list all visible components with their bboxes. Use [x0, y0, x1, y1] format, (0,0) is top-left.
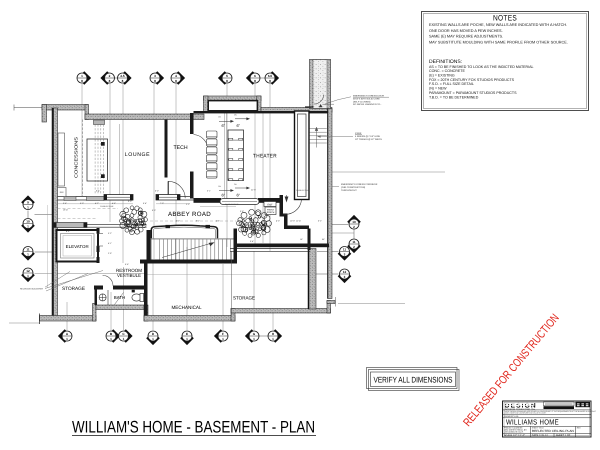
- svg-text:RESTROOM: RESTROOM: [116, 268, 142, 273]
- svg-text:COBBLESTONE: COBBLESTONE: [296, 189, 310, 192]
- svg-text:8: 8: [122, 79, 124, 83]
- svg-text:36" ABOVE LANDING AT FL.: 36" ABOVE LANDING AT FL.: [353, 103, 382, 106]
- svg-text:1: 1: [27, 253, 29, 257]
- svg-text:COBBLESTONE: COBBLESTONE: [225, 203, 239, 206]
- svg-text:COBBLESTONE: COBBLESTONE: [100, 205, 114, 208]
- svg-text:1: 1: [66, 337, 68, 341]
- svg-text:5'-0": 5'-0": [176, 220, 180, 223]
- svg-text:6": 6": [222, 192, 226, 197]
- svg-text:2: 2: [353, 245, 355, 249]
- svg-text:THROUGHOUT: THROUGHOUT: [341, 189, 357, 192]
- svg-text:CONCESSIONS: CONCESSIONS: [74, 137, 79, 178]
- svg-text:3: 3: [344, 253, 346, 257]
- svg-text:8: 8: [154, 79, 156, 83]
- svg-text:12: 12: [26, 269, 30, 273]
- svg-text:4 RISERS @ 7 1/4" HIGH: 4 RISERS @ 7 1/4" HIGH: [355, 135, 381, 138]
- svg-text:3: 3: [344, 275, 346, 279]
- svg-text:SAME (E) MAY REQUIRE ADJUSTMEN: SAME (E) MAY REQUIRE ADJUSTMENTS.: [429, 35, 503, 39]
- svg-text:6'-1": 6'-1": [108, 242, 112, 245]
- svg-text:12'-4": 12'-4": [296, 220, 301, 223]
- svg-text:SHEET 1 OF: SHEET 1 OF: [556, 434, 571, 437]
- svg-text:5'-6": 5'-6": [125, 263, 129, 266]
- svg-text:2: 2: [353, 225, 355, 229]
- svg-text:1: 1: [27, 225, 29, 229]
- svg-text:4: 4: [175, 74, 177, 78]
- svg-text:F: F: [222, 332, 224, 336]
- svg-text:RELOCATE BLEACHER: RELOCATE BLEACHER: [20, 288, 43, 291]
- svg-text:22'-6": 22'-6": [251, 189, 256, 192]
- svg-text:THEATER: THEATER: [253, 154, 277, 160]
- svg-text:1: 1: [186, 337, 188, 341]
- svg-text:VESTIBULE: VESTIBULE: [117, 273, 141, 278]
- svg-text:MAY SUBSTITUTE MOULDING WITH S: MAY SUBSTITUTE MOULDING WITH SAME PROFIL…: [429, 41, 568, 45]
- svg-text:1: 1: [27, 274, 29, 278]
- svg-text:ONE DOOR HAS MOVED A FEW INCHE: ONE DOOR HAS MOVED A FEW INCHES.: [429, 29, 503, 33]
- svg-text:2: 2: [109, 74, 111, 78]
- svg-text:8'-2": 8'-2": [196, 220, 200, 223]
- svg-text:6": 6": [222, 123, 226, 128]
- svg-text:REFLECTED CEILING PLAN: REFLECTED CEILING PLAN: [532, 429, 574, 433]
- svg-text:3'-6": 3'-6": [63, 202, 67, 205]
- svg-text:4'-8": 4'-8": [66, 230, 70, 233]
- svg-text:11: 11: [352, 240, 356, 244]
- svg-text:10'-0": 10'-0": [290, 220, 295, 223]
- svg-text:2'-9": 2'-9": [108, 252, 112, 255]
- svg-text:18'-4": 18'-4": [63, 209, 68, 212]
- svg-text:36"W X 80"H SOLID CORE: 36"W X 80"H SOLID CORE: [353, 97, 380, 100]
- svg-text:TECH: TECH: [173, 145, 187, 151]
- svg-text:6.5: 6.5: [268, 74, 273, 78]
- svg-text:5'-0": 5'-0": [155, 190, 159, 193]
- svg-text:BATH: BATH: [114, 295, 125, 300]
- svg-text:8: 8: [81, 79, 83, 83]
- svg-text:4'-2": 4'-2": [95, 202, 99, 205]
- svg-text:1: 1: [110, 337, 112, 341]
- svg-text:(SELF CLOSING): (SELF CLOSING): [353, 100, 371, 103]
- svg-text:10" TREADS @ 42" WIDTH: 10" TREADS @ 42" WIDTH: [355, 138, 382, 141]
- svg-text:EXIT: EXIT: [267, 203, 273, 206]
- svg-text:11: 11: [343, 248, 347, 252]
- svg-text:9'-0": 9'-0": [152, 209, 156, 212]
- svg-text:1: 1: [272, 337, 274, 341]
- svg-text:2'-2": 2'-2": [186, 203, 190, 206]
- svg-text:FRONT: FRONT: [267, 208, 275, 211]
- svg-text:MECHANICAL: MECHANICAL: [172, 305, 202, 311]
- svg-text:8: 8: [269, 79, 271, 83]
- svg-text:EMERGENCY EGRESS CORRIDOR: EMERGENCY EGRESS CORRIDOR: [341, 183, 378, 186]
- svg-text:DATE 2-26-14: DATE 2-26-14: [532, 434, 548, 437]
- svg-text:WILLIAMS HOME: WILLIAMS HOME: [506, 418, 559, 427]
- svg-text:4'-6": 4'-6": [216, 220, 220, 223]
- svg-text:8: 8: [175, 79, 177, 83]
- svg-text:5'-0": 5'-0": [80, 202, 84, 205]
- svg-text:1: 1: [152, 337, 154, 341]
- svg-text:5'-4": 5'-4": [143, 202, 147, 205]
- svg-text:1: 1: [222, 337, 224, 341]
- svg-text:1: 1: [253, 337, 255, 341]
- svg-text:10: 10: [352, 220, 356, 224]
- svg-text:3'-4": 3'-4": [250, 240, 254, 243]
- svg-text:6: 6: [254, 74, 256, 78]
- svg-text:STORAGE: STORAGE: [233, 296, 255, 302]
- svg-text:9: 9: [27, 201, 29, 205]
- svg-text:1: 1: [27, 206, 29, 210]
- svg-text:5: 5: [226, 74, 228, 78]
- svg-text:WILLIAM'S HOME - BASEMENT - PL: WILLIAM'S HOME - BASEMENT - PLAN: [72, 418, 315, 437]
- svg-text:8: 8: [109, 79, 111, 83]
- svg-text:3'-0": 3'-0": [128, 200, 132, 203]
- svg-text:56": 56": [322, 238, 325, 241]
- svg-text:STORAGE: STORAGE: [62, 286, 85, 292]
- svg-text:1: 1: [81, 74, 83, 78]
- svg-text:8: 8: [254, 79, 256, 83]
- svg-text:6": 6": [237, 123, 241, 128]
- svg-text:8'-4": 8'-4": [96, 190, 100, 193]
- svg-text:3'-1": 3'-1": [207, 190, 211, 193]
- svg-text:T.B.D. = TO BE DETERMINED: T.B.D. = TO BE DETERMINED: [429, 95, 479, 99]
- svg-text:3'-2": 3'-2": [108, 232, 112, 235]
- svg-text:ELEVATOR: ELEVATOR: [66, 244, 89, 249]
- svg-text:16": 16": [300, 238, 303, 241]
- svg-text:3: 3: [154, 74, 156, 78]
- svg-text:12: 12: [343, 270, 347, 274]
- svg-text:EXISTING WALLS ARE POCHE, NEW: EXISTING WALLS ARE POCHE, NEW WALLS ARE …: [429, 23, 567, 27]
- svg-text:11: 11: [26, 248, 30, 252]
- svg-text:LOUNGE: LOUNGE: [125, 152, 151, 158]
- svg-text:VERIFY ALL DIMENSIONS: VERIFY ALL DIMENSIONS: [374, 375, 453, 384]
- svg-text:8: 8: [226, 79, 228, 83]
- svg-text:NOTES: NOTES: [493, 14, 517, 23]
- svg-text:5'-2": 5'-2": [318, 220, 322, 223]
- svg-text:6'-8": 6'-8": [112, 202, 116, 205]
- svg-text:7'-0": 7'-0": [160, 202, 164, 205]
- svg-text:10: 10: [26, 220, 30, 224]
- svg-text:E: E: [186, 332, 188, 336]
- svg-text:1: 1: [123, 337, 125, 341]
- svg-text:SCALE 1/2" = 1'-0": SCALE 1/2" = 1'-0": [504, 434, 525, 437]
- svg-text:ABBEY ROAD: ABBEY ROAD: [168, 211, 211, 218]
- svg-text:2.5: 2.5: [120, 74, 125, 78]
- svg-text:(2HR CONSTRUCTION): (2HR CONSTRUCTION): [341, 186, 365, 189]
- svg-text:6": 6": [237, 192, 241, 197]
- svg-text:4'-0": 4'-0": [276, 220, 280, 223]
- svg-text:PORCH: PORCH: [267, 211, 275, 214]
